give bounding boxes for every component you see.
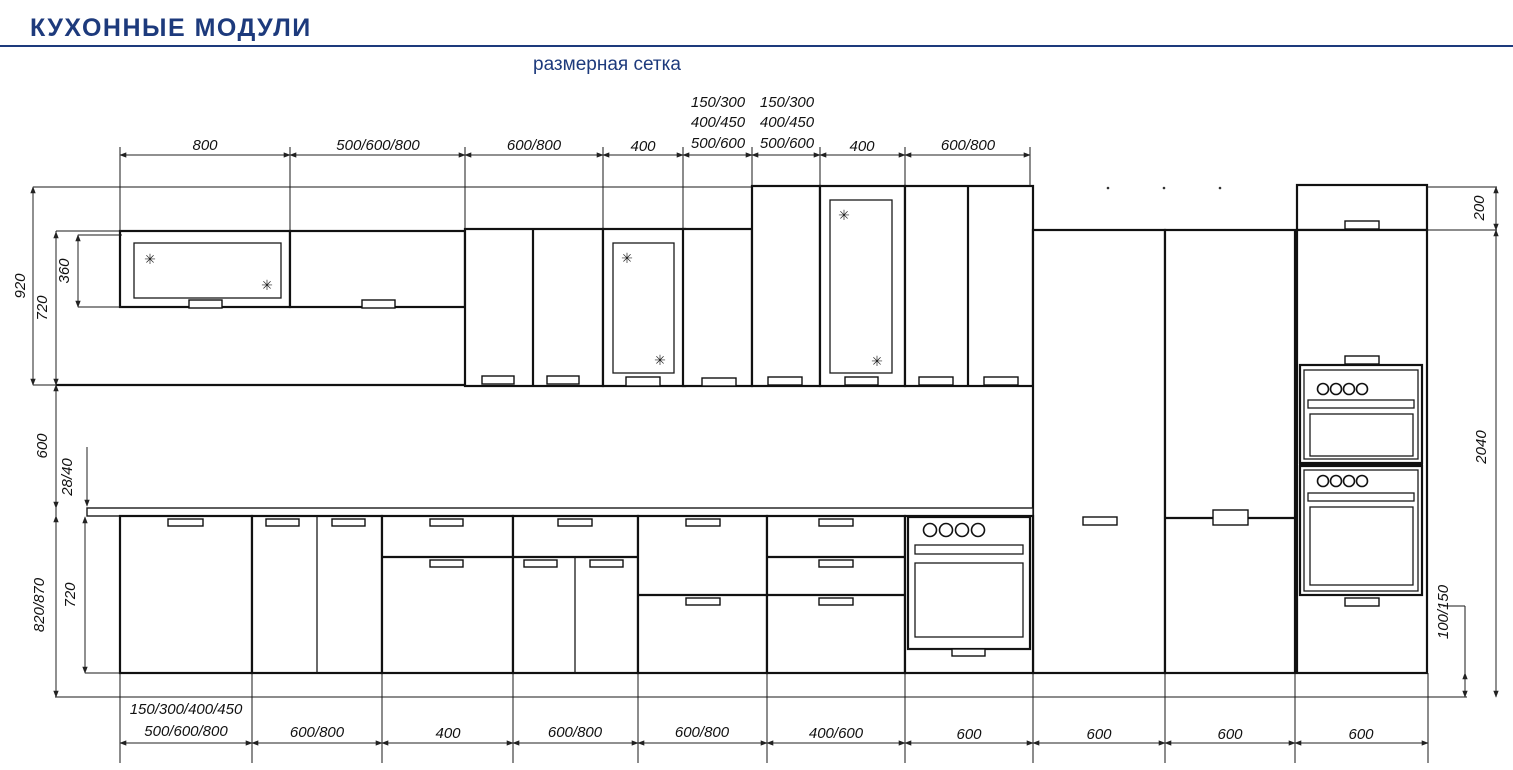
oven-knob <box>1331 476 1342 487</box>
built-in-oven-lower <box>1300 466 1422 595</box>
tall-column-single-door-600 <box>1033 230 1165 673</box>
dim-label-bottom-5: 600/800 <box>675 724 730 741</box>
dim-label-bottom-6: 400/600 <box>809 725 864 742</box>
oven-knob <box>940 524 953 537</box>
oven-knob <box>1357 476 1368 487</box>
glass-mark-icon: ✳ <box>144 252 156 268</box>
dim-label-bottom-7: 600 <box>956 726 982 743</box>
base-cabinet-single-door <box>120 516 252 673</box>
countertop <box>87 508 1033 516</box>
dim-label-bottom-1b: 500/600/800 <box>144 723 228 740</box>
door-handle <box>1345 598 1379 606</box>
wall-line-dot <box>1163 187 1166 190</box>
dim-label-bottom-2: 600/800 <box>290 724 345 741</box>
door-handle <box>1345 356 1379 364</box>
drawer-handle <box>819 598 853 605</box>
dim-label-top-4: 400 <box>630 138 656 155</box>
dim-label-360: 360 <box>56 258 73 284</box>
door-handle <box>1213 510 1248 525</box>
dim-label-720-base: 720 <box>62 582 79 608</box>
tall-column-double-oven-600 <box>1297 185 1427 673</box>
dim-label-600-gap: 600 <box>34 433 51 459</box>
built-in-oven-upper <box>1300 365 1422 463</box>
glass-mark-icon: ✳ <box>261 278 273 294</box>
oven-knob <box>1331 384 1342 395</box>
wall-cabinet-flipup-500-600-800 <box>290 231 465 308</box>
wall-cabinet-flipup-glass-800: ✳ ✳ <box>120 231 290 308</box>
oven-knob <box>956 524 969 537</box>
tall-column-split-door-600 <box>1165 230 1295 673</box>
door-handle <box>768 377 802 385</box>
door-handle <box>626 377 660 386</box>
dim-label-200: 200 <box>1471 195 1488 222</box>
drawer-handle <box>819 519 853 526</box>
drawer-handle <box>952 649 985 656</box>
base-cabinet-drawer-door-400 <box>382 516 513 673</box>
kitchen-modules-page: КУХОННЫЕ МОДУЛИ размерная сетка ✳ ✳ <box>0 0 1513 770</box>
dim-label-top-5c: 500/600 <box>691 135 746 152</box>
right-dimensions: 200 2040 100/150 <box>1427 187 1497 697</box>
dim-label-bottom-8: 600 <box>1086 726 1112 743</box>
dim-label-top-6b: 400/450 <box>760 114 815 131</box>
dim-label-plinth-100-150: 100/150 <box>1435 584 1452 639</box>
wall-cabinet-two-door-600-800 <box>465 229 603 386</box>
door-handle <box>189 300 222 308</box>
dim-label-bottom-1a: 150/300/400/450 <box>130 701 243 718</box>
dim-label-top-5a: 150/300 <box>691 94 746 111</box>
dim-label-top-5b: 400/450 <box>691 114 746 131</box>
glass-mark-icon: ✳ <box>838 208 850 224</box>
dim-label-top-6a: 150/300 <box>760 94 815 111</box>
wall-cabinet-tall-920-two-door-600-800 <box>905 186 1033 386</box>
oven-body <box>908 517 1030 649</box>
door-handle <box>845 377 878 385</box>
dimensional-grid-drawing: ✳ ✳ ✳ ✳ <box>0 0 1513 770</box>
oven-knob <box>1344 384 1355 395</box>
door-handle <box>168 519 203 526</box>
dim-label-countertop-28-40: 28/40 <box>59 458 76 497</box>
wall-line-dot <box>1219 187 1222 190</box>
door-handle <box>430 560 463 567</box>
base-cabinet-oven-600 <box>905 516 1033 673</box>
door-handle <box>332 519 365 526</box>
door-handle <box>702 378 736 386</box>
wall-cabinet-narrow <box>683 229 752 386</box>
dim-label-720-wall: 720 <box>34 295 51 321</box>
door-handle <box>1083 517 1117 525</box>
base-cabinet-two-drawers-600-800 <box>638 516 767 673</box>
drawer-handle <box>430 519 463 526</box>
door-handle <box>362 300 395 308</box>
door-handle <box>1345 221 1379 229</box>
glass-mark-icon: ✳ <box>654 353 666 369</box>
bottom-dimension-chain: 150/300/400/450 500/600/800 600/800 400 … <box>120 701 1428 743</box>
wall-cabinet-tall-920-narrow <box>752 186 820 386</box>
dim-label-bottom-3: 400 <box>435 725 461 742</box>
oven-knob <box>1357 384 1368 395</box>
dim-label-top-7: 400 <box>849 138 875 155</box>
dim-label-bottom-9: 600 <box>1217 726 1243 743</box>
wall-cabinet-tall-920-glass-400: ✳ ✳ <box>820 186 905 386</box>
dim-label-top-3: 600/800 <box>507 137 562 154</box>
dim-label-2040: 2040 <box>1473 430 1490 465</box>
oven-knob <box>1318 476 1329 487</box>
plinth-and-extension-lines <box>120 673 1428 763</box>
oven-knob <box>972 524 985 537</box>
dim-label-920: 920 <box>12 273 29 299</box>
base-cabinet-drawer-two-door-600-800 <box>513 516 638 673</box>
door-handle <box>984 377 1018 385</box>
oven-knob <box>924 524 937 537</box>
oven-knob <box>1344 476 1355 487</box>
oven-knob <box>1318 384 1329 395</box>
glass-mark-icon: ✳ <box>871 354 883 370</box>
drawer-handle <box>686 598 720 605</box>
drawer-handle <box>819 560 853 567</box>
dim-label-top-2: 500/600/800 <box>336 137 420 154</box>
dim-label-bottom-10: 600 <box>1348 726 1374 743</box>
base-cabinet-two-door-600-800 <box>252 516 382 673</box>
dim-label-top-6c: 500/600 <box>760 135 815 152</box>
door-handle <box>524 560 557 567</box>
drawer-handle <box>558 519 592 526</box>
door-handle <box>547 376 579 384</box>
drawer-handle <box>686 519 720 526</box>
door-handle <box>482 376 514 384</box>
door-handle <box>266 519 299 526</box>
base-cabinet-three-drawers-400-600 <box>767 516 905 673</box>
wall-cabinet-glass-400: ✳ ✳ <box>603 229 685 386</box>
dim-label-bottom-4: 600/800 <box>548 724 603 741</box>
wall-line-dot <box>1107 187 1110 190</box>
glass-mark-icon: ✳ <box>621 251 633 267</box>
door-handle <box>919 377 953 385</box>
dim-label-top-1: 800 <box>192 137 218 154</box>
dim-label-820-870: 820/870 <box>31 577 48 632</box>
dim-label-top-8: 600/800 <box>941 137 996 154</box>
door-handle <box>590 560 623 567</box>
left-dimensions: 920 720 360 600 28/40 820/870 720 <box>12 187 122 697</box>
